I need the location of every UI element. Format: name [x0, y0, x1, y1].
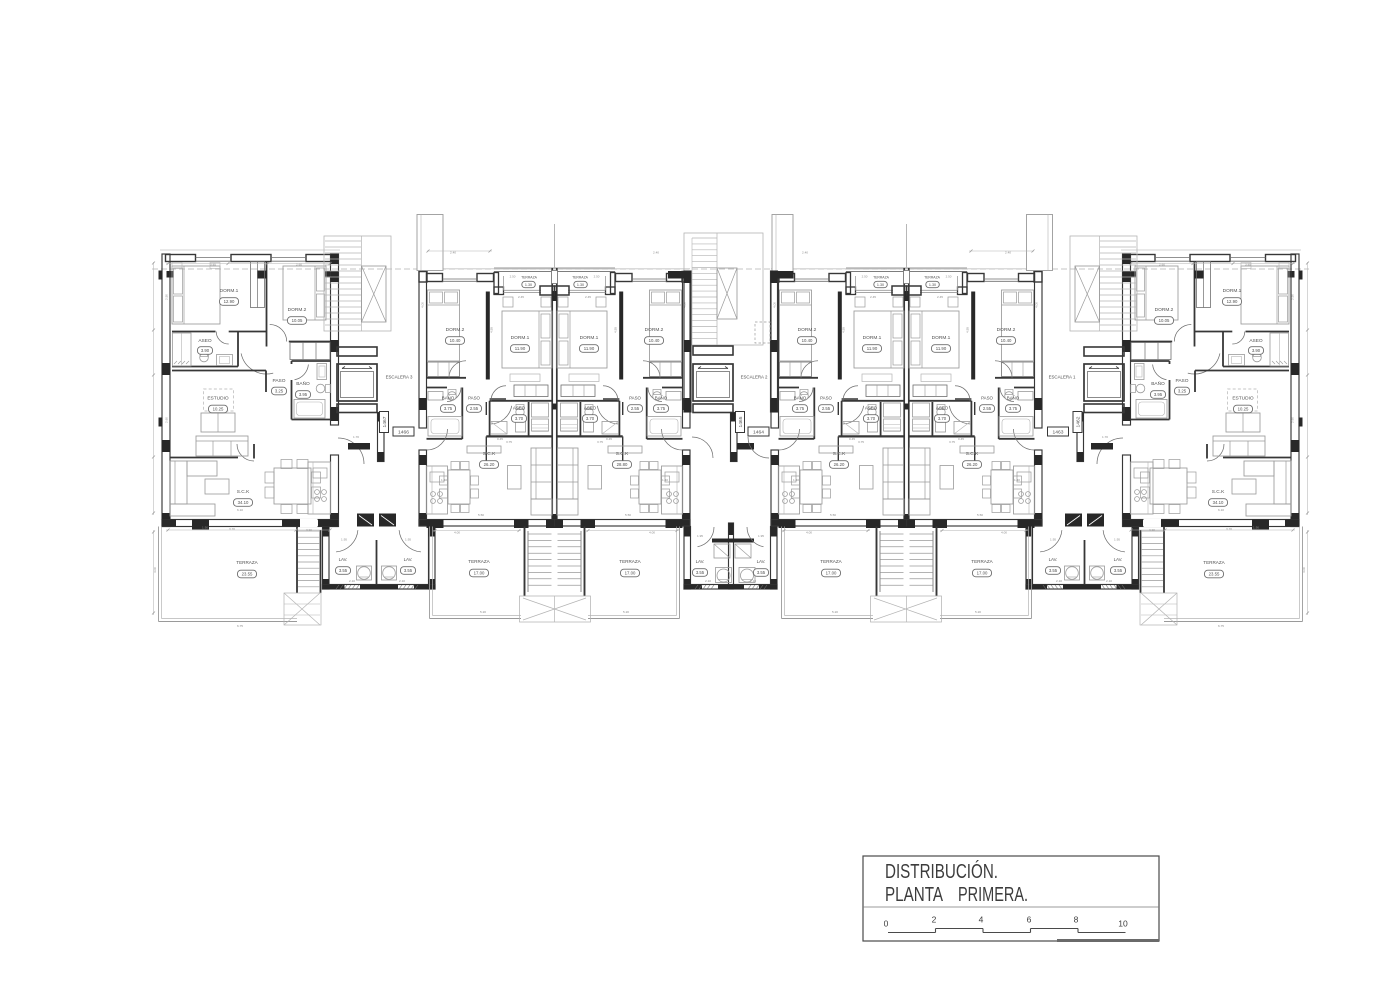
svg-text:3.85: 3.85	[210, 263, 216, 267]
svg-text:2.60: 2.60	[1291, 417, 1295, 423]
svg-text:2.10: 2.10	[750, 579, 756, 583]
svg-text:4.55: 4.55	[966, 327, 970, 333]
svg-text:0.45: 0.45	[849, 437, 855, 441]
svg-text:LAV.: LAV.	[757, 559, 766, 564]
svg-text:2.40: 2.40	[802, 251, 808, 255]
svg-text:4: 4	[979, 915, 984, 925]
svg-text:2: 2	[932, 915, 937, 925]
svg-text:2.50: 2.50	[594, 275, 600, 279]
svg-text:0.45: 0.45	[958, 437, 964, 441]
svg-text:LAV.: LAV.	[1049, 557, 1058, 562]
svg-text:10.05: 10.05	[1159, 318, 1170, 323]
svg-text:2.10: 2.10	[1056, 579, 1062, 583]
svg-text:23.55: 23.55	[1209, 572, 1220, 577]
svg-text:DORM.2: DORM.2	[1155, 307, 1174, 313]
svg-text:2.50: 2.50	[1291, 294, 1295, 300]
svg-text:ASEO: ASEO	[513, 406, 526, 411]
svg-text:2.10: 2.10	[705, 579, 711, 583]
svg-text:10.05: 10.05	[292, 318, 303, 323]
svg-text:4.55: 4.55	[614, 327, 618, 333]
svg-text:6.75: 6.75	[237, 624, 243, 628]
svg-text:DORM.1: DORM.1	[580, 335, 599, 341]
svg-text:2.50: 2.50	[862, 275, 868, 279]
svg-text:12.90: 12.90	[1227, 299, 1238, 304]
svg-text:5.20: 5.20	[623, 610, 629, 614]
svg-text:4.55: 4.55	[842, 327, 846, 333]
svg-text:1.90: 1.90	[202, 526, 208, 530]
svg-text:3.70: 3.70	[586, 416, 595, 421]
svg-text:4.00: 4.00	[649, 531, 655, 535]
svg-text:5.50: 5.50	[830, 513, 836, 517]
svg-text:BAÑO: BAÑO	[296, 380, 310, 387]
svg-text:1.95: 1.95	[1050, 538, 1056, 542]
svg-text:11.90: 11.90	[867, 346, 878, 351]
svg-text:1.95: 1.95	[341, 538, 347, 542]
svg-text:DORM.1: DORM.1	[863, 335, 882, 341]
svg-text:DORM.1: DORM.1	[220, 288, 239, 294]
svg-text:1.40: 1.40	[1014, 478, 1020, 482]
svg-text:PRIMERA.: PRIMERA.	[958, 884, 1028, 906]
svg-text:ESTUDIO: ESTUDIO	[1232, 396, 1254, 402]
svg-text:3.75: 3.75	[657, 406, 666, 411]
svg-text:1467: 1467	[382, 416, 388, 427]
svg-text:BAÑO: BAÑO	[1151, 380, 1165, 387]
svg-text:3.75: 3.75	[949, 440, 955, 444]
svg-text:1.30: 1.30	[525, 283, 532, 287]
svg-text:3.85: 3.85	[1245, 263, 1251, 267]
svg-text:17.00: 17.00	[826, 571, 837, 576]
svg-text:S.C.K: S.C.K	[483, 451, 496, 457]
svg-text:BAÑO: BAÑO	[1007, 396, 1020, 401]
svg-text:1.70: 1.70	[1102, 435, 1108, 439]
svg-text:5.50: 5.50	[625, 513, 631, 517]
svg-text:4.00: 4.00	[806, 531, 812, 535]
svg-text:PASO: PASO	[1176, 378, 1189, 384]
svg-text:4.00: 4.00	[1302, 567, 1306, 573]
svg-text:TERRAZA: TERRAZA	[820, 559, 842, 564]
svg-text:LAV.: LAV.	[339, 557, 348, 562]
svg-text:3.55: 3.55	[404, 568, 413, 573]
svg-text:8: 8	[1074, 915, 1079, 925]
svg-text:26.20: 26.20	[967, 462, 978, 467]
svg-text:17.00: 17.00	[625, 571, 636, 576]
svg-text:10: 10	[1118, 919, 1128, 929]
svg-text:1463: 1463	[1053, 429, 1064, 435]
svg-text:ESCALERA 2: ESCALERA 2	[741, 375, 768, 380]
svg-text:34.10: 34.10	[238, 500, 249, 505]
svg-text:4.00: 4.00	[1001, 531, 1007, 535]
svg-text:1.90: 1.90	[1253, 526, 1259, 530]
svg-text:3.25: 3.25	[275, 389, 284, 394]
svg-text:17.00: 17.00	[474, 571, 485, 576]
svg-text:4.00: 4.00	[1035, 302, 1039, 308]
svg-text:1462: 1462	[1075, 416, 1081, 427]
svg-text:2.55: 2.55	[470, 406, 479, 411]
svg-text:1.30: 1.30	[877, 283, 884, 287]
svg-text:3.75: 3.75	[506, 440, 512, 444]
svg-text:3.75: 3.75	[796, 406, 805, 411]
svg-text:ASEO: ASEO	[198, 338, 212, 344]
svg-text:2.60: 2.60	[165, 417, 169, 423]
svg-text:TERRAZA: TERRAZA	[468, 559, 490, 564]
svg-text:S.C.K: S.C.K	[833, 451, 846, 457]
svg-text:BAÑO: BAÑO	[655, 396, 668, 401]
svg-text:DORM.2: DORM.2	[798, 327, 817, 333]
svg-text:PASO: PASO	[629, 396, 641, 401]
svg-text:TERRAZA: TERRAZA	[236, 560, 258, 565]
svg-text:DORM.1: DORM.1	[1223, 288, 1242, 294]
svg-text:0: 0	[884, 919, 889, 929]
svg-text:3.70: 3.70	[1226, 527, 1232, 531]
svg-text:17.00: 17.00	[977, 571, 988, 576]
svg-text:TERRAZA: TERRAZA	[572, 276, 589, 280]
svg-text:2.45: 2.45	[937, 295, 943, 299]
svg-text:ESCALERA 3: ESCALERA 3	[386, 375, 413, 380]
svg-text:LAV.: LAV.	[404, 557, 413, 562]
svg-text:3.90: 3.90	[1252, 348, 1261, 353]
svg-text:6.10: 6.10	[1218, 508, 1224, 512]
svg-text:26.20: 26.20	[834, 462, 845, 467]
svg-text:3.55: 3.55	[339, 568, 348, 573]
svg-text:TERRAZA: TERRAZA	[521, 276, 538, 280]
svg-text:0.45: 0.45	[497, 437, 503, 441]
svg-text:4.00: 4.00	[773, 302, 777, 308]
svg-text:10.40: 10.40	[1001, 338, 1012, 343]
svg-text:5.20: 5.20	[832, 610, 838, 614]
svg-text:11.90: 11.90	[515, 346, 526, 351]
svg-text:26.20: 26.20	[484, 462, 495, 467]
svg-text:5.50: 5.50	[478, 513, 484, 517]
svg-text:3.90: 3.90	[201, 348, 210, 353]
svg-text:3.55: 3.55	[757, 570, 766, 575]
svg-text:3.70: 3.70	[867, 416, 876, 421]
svg-text:11.90: 11.90	[936, 346, 947, 351]
svg-text:11.90: 11.90	[584, 346, 595, 351]
svg-text:10.40: 10.40	[649, 338, 660, 343]
svg-text:10.25: 10.25	[213, 407, 224, 412]
svg-text:1.30: 1.30	[929, 283, 936, 287]
svg-text:5.20: 5.20	[975, 610, 981, 614]
svg-text:12.90: 12.90	[224, 299, 235, 304]
svg-text:S.C.K: S.C.K	[1212, 489, 1225, 495]
svg-text:PASO: PASO	[468, 396, 480, 401]
svg-text:DORM.2: DORM.2	[288, 307, 307, 313]
svg-text:2.55: 2.55	[983, 406, 992, 411]
svg-text:10.40: 10.40	[802, 338, 813, 343]
svg-text:3.95: 3.95	[1154, 392, 1163, 397]
svg-text:2.60: 2.60	[296, 263, 302, 267]
svg-text:ASEO: ASEO	[865, 406, 878, 411]
svg-text:ASEO: ASEO	[1249, 338, 1263, 344]
svg-text:5.20: 5.20	[480, 610, 486, 614]
svg-text:1.70: 1.70	[353, 435, 359, 439]
svg-text:PASO: PASO	[273, 378, 286, 384]
svg-text:1.95: 1.95	[1114, 538, 1120, 542]
svg-text:1.40: 1.40	[662, 478, 668, 482]
svg-text:2.40: 2.40	[653, 251, 659, 255]
svg-text:3.70: 3.70	[515, 416, 524, 421]
svg-text:TERRAZA: TERRAZA	[1203, 560, 1225, 565]
svg-text:28.80: 28.80	[617, 462, 628, 467]
svg-text:2.45: 2.45	[585, 295, 591, 299]
svg-text:TERRAZA: TERRAZA	[971, 559, 993, 564]
svg-text:10.40: 10.40	[450, 338, 461, 343]
svg-text:DORM.2: DORM.2	[645, 327, 664, 333]
svg-text:ASEO: ASEO	[936, 406, 949, 411]
svg-text:TERRAZA: TERRAZA	[619, 559, 641, 564]
svg-text:3.55: 3.55	[1049, 568, 1058, 573]
svg-text:1.40: 1.40	[441, 478, 447, 482]
svg-text:3.25: 3.25	[1178, 389, 1187, 394]
svg-text:2.55: 2.55	[631, 406, 640, 411]
svg-text:BAÑO: BAÑO	[794, 396, 807, 401]
svg-text:1466: 1466	[398, 429, 409, 435]
svg-text:1465: 1465	[738, 416, 744, 427]
svg-text:ESTUDIO: ESTUDIO	[207, 396, 229, 402]
svg-text:PASO: PASO	[981, 396, 993, 401]
svg-text:4.55: 4.55	[490, 327, 494, 333]
svg-text:DORM.2: DORM.2	[997, 327, 1016, 333]
svg-text:1.95: 1.95	[697, 534, 703, 538]
svg-text:LAV.: LAV.	[696, 559, 705, 564]
svg-text:2.10: 2.10	[349, 579, 355, 583]
svg-text:TERRAZA: TERRAZA	[924, 276, 941, 280]
svg-text:DORM.2: DORM.2	[446, 327, 465, 333]
svg-text:2.45: 2.45	[870, 295, 876, 299]
svg-text:3.95: 3.95	[299, 392, 308, 397]
svg-text:1.30: 1.30	[577, 283, 584, 287]
svg-text:2.50: 2.50	[165, 294, 169, 300]
svg-text:3.70: 3.70	[938, 416, 947, 421]
svg-text:DISTRIBUCIÓN.: DISTRIBUCIÓN.	[885, 860, 998, 883]
svg-text:ESCALERA 1: ESCALERA 1	[1049, 375, 1076, 380]
svg-text:10.25: 10.25	[1238, 407, 1249, 412]
svg-text:S.C.K: S.C.K	[966, 451, 979, 457]
svg-text:3.70: 3.70	[229, 527, 235, 531]
svg-text:2.10: 2.10	[1106, 579, 1112, 583]
svg-text:2.60: 2.60	[1159, 263, 1165, 267]
svg-text:2.45: 2.45	[518, 295, 524, 299]
svg-text:3.75: 3.75	[444, 406, 453, 411]
svg-text:2.50: 2.50	[510, 275, 516, 279]
svg-text:6.75: 6.75	[1218, 624, 1224, 628]
svg-text:S.C.K: S.C.K	[616, 451, 629, 457]
svg-text:2.50: 2.50	[946, 275, 952, 279]
svg-text:4.00: 4.00	[421, 302, 425, 308]
svg-text:34.10: 34.10	[1213, 500, 1224, 505]
svg-text:0.45: 0.45	[606, 437, 612, 441]
svg-text:ASEO: ASEO	[584, 406, 597, 411]
svg-text:DORM.1: DORM.1	[511, 335, 530, 341]
svg-text:DORM.1: DORM.1	[932, 335, 951, 341]
svg-text:6.10: 6.10	[237, 508, 243, 512]
svg-text:1.95: 1.95	[758, 534, 764, 538]
svg-text:6: 6	[1027, 915, 1032, 925]
svg-text:3.75: 3.75	[1009, 406, 1018, 411]
svg-text:LAV.: LAV.	[1114, 557, 1123, 562]
svg-text:4.00: 4.00	[454, 531, 460, 535]
svg-text:5.50: 5.50	[977, 513, 983, 517]
svg-text:TERRAZA: TERRAZA	[873, 276, 890, 280]
svg-text:BAÑO: BAÑO	[442, 396, 455, 401]
svg-text:S.C.K: S.C.K	[237, 489, 250, 495]
svg-text:23.55: 23.55	[242, 572, 253, 577]
svg-text:3.55: 3.55	[696, 570, 705, 575]
svg-text:3.75: 3.75	[858, 440, 864, 444]
svg-text:2.55: 2.55	[822, 406, 831, 411]
svg-text:2.10: 2.10	[399, 579, 405, 583]
svg-text:1.95: 1.95	[405, 538, 411, 542]
svg-text:PLANTA: PLANTA	[885, 884, 943, 906]
svg-text:3.55: 3.55	[1114, 568, 1123, 573]
svg-text:1.40: 1.40	[793, 478, 799, 482]
svg-text:PASO: PASO	[820, 396, 832, 401]
svg-text:1464: 1464	[753, 429, 764, 435]
svg-text:3.75: 3.75	[597, 440, 603, 444]
